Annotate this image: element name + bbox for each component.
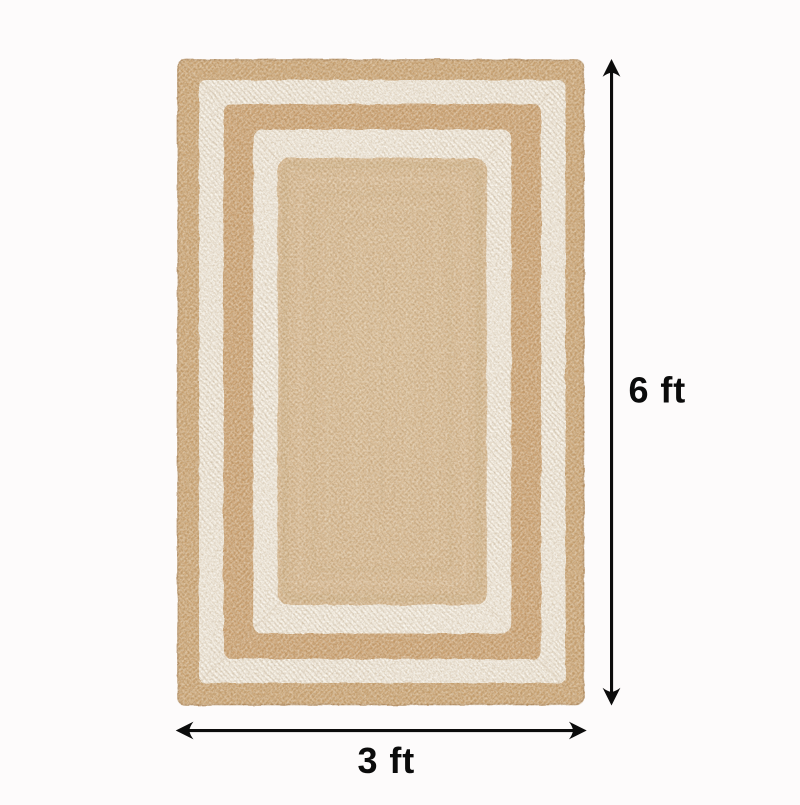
svg-text:6 ft: 6 ft xyxy=(629,370,687,411)
svg-text:3 ft: 3 ft xyxy=(358,740,416,781)
